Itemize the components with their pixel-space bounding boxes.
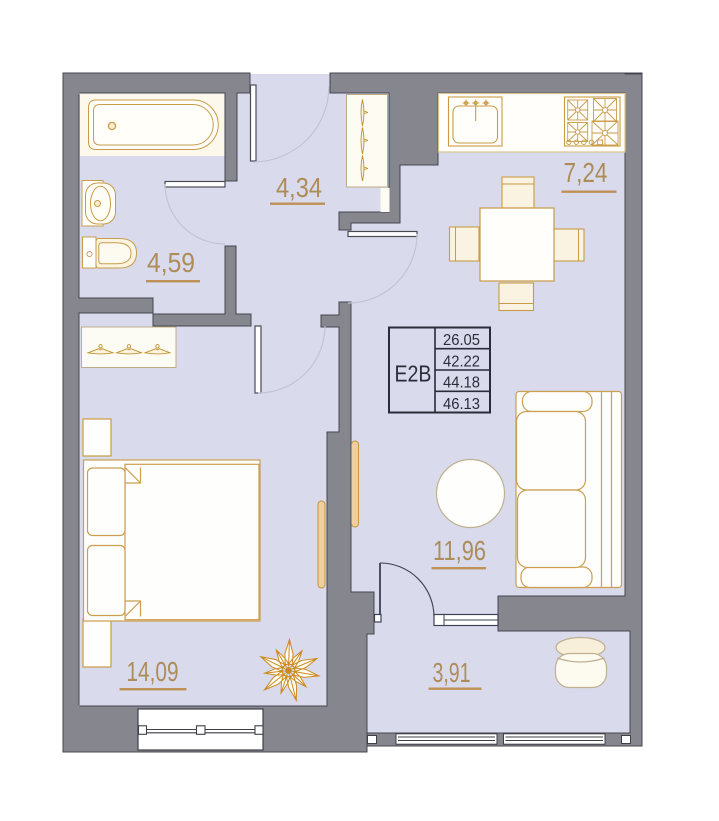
svg-text:11,96: 11,96 [433, 535, 486, 566]
svg-text:26.05: 26.05 [443, 332, 480, 349]
svg-text:14,09: 14,09 [127, 656, 179, 687]
svg-text:46.13: 46.13 [443, 396, 480, 413]
svg-text:44.18: 44.18 [443, 375, 480, 392]
svg-text:4,34: 4,34 [276, 172, 322, 203]
svg-text:3,91: 3,91 [433, 657, 471, 688]
svg-text:42.22: 42.22 [443, 353, 480, 370]
svg-text:4,59: 4,59 [147, 247, 195, 278]
svg-text:7,24: 7,24 [564, 157, 608, 188]
svg-text:E2B: E2B [395, 361, 432, 387]
